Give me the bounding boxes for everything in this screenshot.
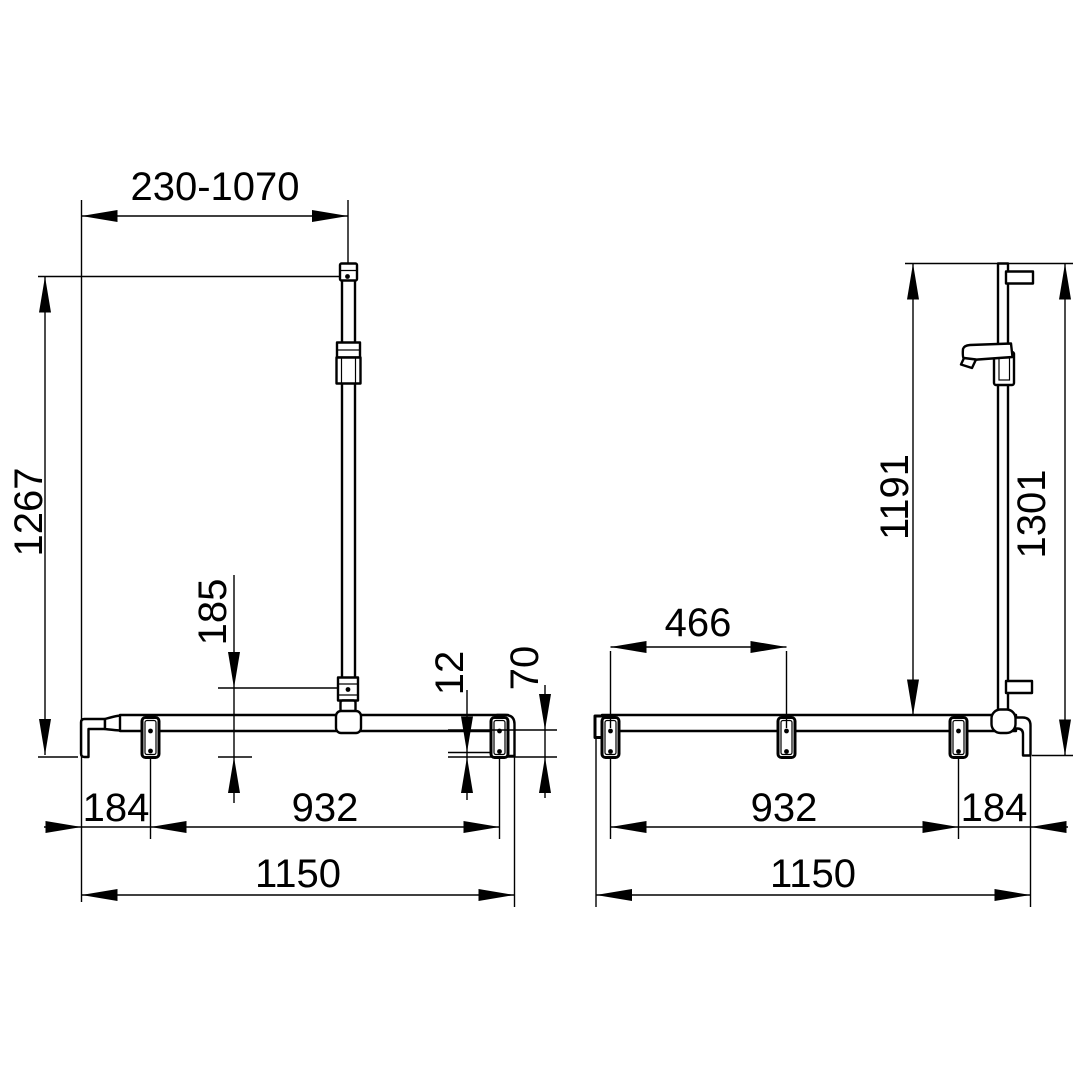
- plate-screw: [784, 749, 789, 754]
- dim-label-bracket-to-end: 184: [961, 786, 1028, 830]
- bar-tube: [120, 715, 508, 731]
- slider-block-icon: [337, 358, 361, 384]
- bar-left-taper: [105, 716, 121, 731]
- plate-screw: [608, 749, 613, 754]
- dim-label-bracket-span: 932: [751, 786, 818, 830]
- dim-label-lower-fixing: 185: [191, 579, 235, 646]
- wall-plate-3: [950, 718, 967, 758]
- dim-label-total-height: 1267: [7, 468, 51, 557]
- dim-label-adjust-range: 230-1070: [130, 165, 299, 209]
- rail-tube: [998, 264, 1008, 711]
- dim-label-upper-bracket-span: 466: [665, 601, 732, 645]
- bar-left-wall-return: [81, 719, 105, 757]
- tee-fitting: [336, 711, 361, 733]
- side-view: 1191 1301 466 932 184 1150: [595, 264, 1073, 908]
- drawing-sheet: 230-1070 1267 185 12 70 184 932 1150: [0, 0, 1080, 1080]
- dim-label-end-to-bracket: 184: [83, 786, 150, 830]
- technical-drawing: 230-1070 1267 185 12 70 184 932 1150: [0, 0, 1080, 1080]
- plate-screw: [956, 749, 961, 754]
- dim-label-bracket-span: 932: [292, 786, 359, 830]
- plate-screw: [148, 749, 153, 754]
- dim-label-rail-height: 1191: [873, 454, 917, 540]
- plate-screw: [784, 729, 789, 734]
- rail-lower-wall-arm: [1006, 681, 1032, 693]
- vertical-bar: [336, 264, 361, 734]
- plate-screw: [497, 749, 502, 754]
- dim-label-total-length: 1150: [770, 852, 856, 896]
- top-bracket-screw: [345, 274, 350, 279]
- rail-top-wall-arm: [1006, 272, 1033, 284]
- dim-label-total-height: 1301: [1010, 470, 1054, 559]
- lower-bracket-screw: [346, 687, 351, 692]
- plate-screw: [148, 729, 153, 734]
- wall-plate-left: [142, 718, 159, 758]
- dim-label-end-drop: 70: [503, 646, 547, 691]
- front-view: 230-1070 1267 185 12 70 184 932 1150: [7, 165, 557, 907]
- plate-screw: [956, 729, 961, 734]
- plate-screw: [608, 729, 613, 734]
- dim-label-plate-bottom: 12: [428, 651, 472, 696]
- hand-shower-nozzle: [961, 358, 976, 368]
- dim-label-total-length: 1150: [255, 852, 341, 896]
- wall-plate-right: [491, 718, 508, 758]
- side-dimension-labels: 1191 1301 466 932 184 1150: [665, 454, 1054, 896]
- elbow-fitting: [992, 710, 1016, 734]
